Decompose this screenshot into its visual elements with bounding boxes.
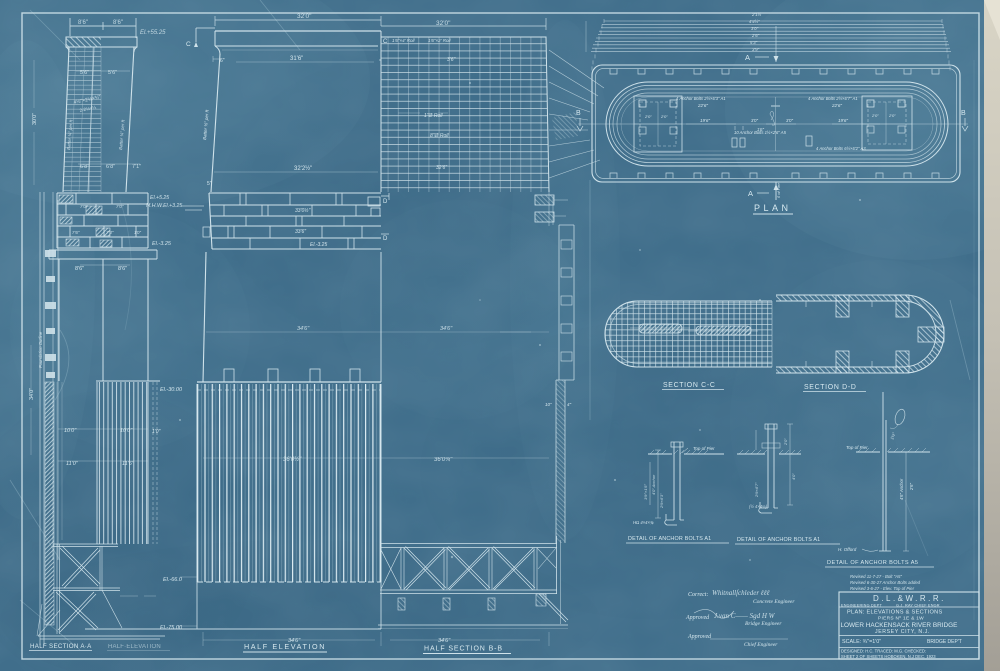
svg-text:4 Anchor Bolts 2½×6'7" A1: 4 Anchor Bolts 2½×6'7" A1	[808, 96, 858, 101]
svg-text:PLAN: PLAN	[754, 203, 792, 213]
svg-text:2'6": 2'6"	[751, 33, 760, 38]
svg-text:34'6": 34'6"	[438, 638, 451, 644]
svg-text:Foundation Outline: Foundation Outline	[38, 331, 43, 368]
svg-text:4": 4"	[567, 402, 572, 407]
svg-text:Revised 3-6-27 - Elev. Top of: Revised 3-6-27 - Elev. Top of Pier	[850, 586, 915, 591]
svg-text:SCALE: ¾"=1'0": SCALE: ¾"=1'0"	[842, 639, 881, 645]
svg-text:El.-3.25: El.-3.25	[152, 241, 172, 247]
svg-text:32'6": 32'6"	[436, 165, 447, 171]
svg-text:1'0": 1'0"	[134, 230, 141, 235]
svg-text:4'0": 4'0"	[791, 473, 796, 480]
svg-text:Whitnallſchleder ℓℓℓ: Whitnallſchleder ℓℓℓ	[712, 589, 770, 597]
svg-text:6": 6"	[220, 58, 225, 64]
svg-text:8"Ø Roll: 8"Ø Roll	[430, 133, 449, 139]
svg-text:1'0": 1'0"	[152, 429, 161, 435]
svg-text:ENGINEERING DEPT: ENGINEERING DEPT	[841, 604, 882, 608]
svg-text:Approved: Approved	[687, 634, 712, 640]
svg-text:3'9": 3'9"	[752, 47, 760, 52]
svg-text:8'6": 8'6"	[78, 20, 88, 26]
svg-text:PLAN: ELEVATIONS & SECTIONS: PLAN: ELEVATIONS & SECTIONS	[847, 610, 943, 616]
svg-text:G.J. RAY CHIEF ENGR: G.J. RAY CHIEF ENGR	[896, 604, 940, 608]
svg-text:SHEET 2 OF SHEETS HOBOKEN: SHEET 2 OF SHEETS HOBOKEN, N.J DEC. 1923	[841, 654, 936, 659]
svg-text:DETAIL OF ANCHOR BOLTS A1: DETAIL OF ANCHOR BOLTS A1	[628, 536, 711, 542]
svg-text:SECTION D-D: SECTION D-D	[804, 384, 857, 391]
svg-text:4 Anchor Bolts 6½×6'2" A3: 4 Anchor Bolts 6½×6'2" A3	[816, 146, 866, 151]
svg-text:4'6" Anchor: 4'6" Anchor	[899, 478, 904, 500]
svg-text:SECTION C-C: SECTION C-C	[663, 382, 716, 389]
svg-text:El.-30.00: El.-30.00	[160, 387, 183, 393]
svg-text:1'6"×2' Roll: 1'6"×2' Roll	[428, 38, 451, 43]
svg-text:H. Offord: H. Offord	[838, 547, 857, 552]
svg-text:DETAIL OF ANCHOR BOLTS A1: DETAIL OF ANCHOR BOLTS A1	[737, 537, 820, 543]
svg-text:8'6": 8'6"	[118, 266, 127, 272]
svg-text:33'0½": 33'0½"	[295, 207, 310, 214]
svg-text:Top of Pier: Top of Pier	[846, 445, 868, 450]
svg-text:2'0": 2'0"	[783, 438, 788, 446]
svg-text:22'6": 22'6"	[831, 103, 842, 108]
svg-text:2'0": 2'0"	[888, 113, 896, 118]
svg-text:¢ of Pier: ¢ of Pier	[776, 182, 781, 198]
svg-text:4'4½": 4'4½"	[749, 19, 760, 24]
svg-text:32'2½": 32'2½"	[294, 165, 312, 172]
svg-text:3'6": 3'6"	[447, 57, 456, 63]
svg-text:7'4": 7'4"	[106, 230, 114, 235]
svg-text:11'6": 11'6"	[122, 461, 135, 467]
svg-text:JERSEY CITY, N.J.: JERSEY CITY, N.J.	[875, 629, 930, 635]
svg-text:32'0": 32'0"	[297, 13, 312, 20]
svg-text:8'6": 8'6"	[75, 266, 84, 272]
svg-text:2'0": 2'0"	[644, 114, 652, 119]
svg-text:11'0": 11'0"	[66, 461, 79, 467]
svg-text:22'6": 22'6"	[697, 103, 708, 108]
svg-text:El.+55.25: El.+55.25	[140, 30, 166, 36]
svg-text:4 Anchor Bolts 2½×6'3" A1: 4 Anchor Bolts 2½×6'3" A1	[676, 96, 726, 101]
svg-text:1'6": 1'6"	[757, 127, 764, 132]
svg-text:PIERS Nº 1E & 1W: PIERS Nº 1E & 1W	[878, 616, 924, 622]
svg-text:HALF ELEVATION: HALF ELEVATION	[244, 642, 326, 651]
svg-text:32'0": 32'0"	[436, 20, 451, 27]
svg-text:3'0": 3'0"	[751, 26, 759, 31]
svg-text:M.H.W.El.+3.25: M.H.W.El.+3.25	[146, 203, 182, 209]
svg-text:5'3": 5'3"	[750, 40, 758, 45]
svg-text:HΩ 4×4×¾: HΩ 4×4×¾	[633, 520, 654, 525]
svg-text:B: B	[961, 110, 966, 117]
svg-text:31'6": 31'6"	[290, 56, 303, 62]
svg-text:BRIDGE DEP'T: BRIDGE DEP'T	[927, 639, 962, 645]
svg-text:El.+5.25: El.+5.25	[150, 195, 169, 201]
svg-text:Revised 11-7-27 - Bolt "A5": Revised 11-7-27 - Bolt "A5"	[850, 574, 902, 579]
svg-text:2'0": 2'0"	[871, 113, 879, 118]
svg-text:3'0": 3'0"	[751, 118, 758, 123]
svg-text:Top of Pier: Top of Pier	[693, 446, 715, 451]
svg-text:2'0": 2'0"	[660, 114, 668, 119]
svg-text:5": 5"	[207, 181, 212, 187]
svg-text:19'6": 19'6"	[700, 118, 710, 123]
svg-text:C: C	[383, 39, 388, 45]
svg-text:7'6": 7'6"	[72, 230, 80, 235]
svg-text:DESIGNED: H.C. TRACED: M.G. CH: DESIGNED: H.C. TRACED: M.G. CHECKED:	[841, 649, 926, 654]
svg-text:Revised 6-30-27 Anchor Bolts: Revised 6-30-27 Anchor Bolts added	[850, 580, 921, 585]
svg-text:7'0": 7'0"	[116, 204, 124, 209]
svg-text:El.-66.0: El.-66.0	[163, 577, 183, 583]
svg-text:D: D	[383, 199, 388, 205]
svg-text:30'0": 30'0"	[32, 113, 38, 125]
svg-text:1½"×1'6": 1½"×1'6"	[643, 483, 648, 500]
svg-text:HALF SECTION B-B: HALF SECTION B-B	[424, 646, 503, 653]
svg-text:2'6": 2'6"	[909, 483, 914, 491]
svg-text:Approved: Approved	[685, 615, 710, 621]
svg-text:C: C	[186, 41, 191, 48]
svg-text:33'6": 33'6"	[295, 229, 306, 235]
svg-text:Correct:: Correct:	[688, 592, 708, 598]
svg-text:El.-3.25: El.-3.25	[310, 242, 327, 248]
svg-text:DETAIL OF ANCHOR BOLTS A5: DETAIL OF ANCHOR BOLTS A5	[827, 560, 918, 566]
svg-text:34'0": 34'0"	[29, 388, 35, 400]
svg-text:(½ 4×4⅓): (½ 4×4⅓)	[749, 504, 768, 509]
svg-text:B: B	[576, 110, 581, 117]
svg-text:36'0½": 36'0½"	[283, 456, 302, 463]
svg-text:2½×6'3": 2½×6'3"	[659, 493, 664, 509]
svg-text:Concrete Engineer: Concrete Engineer	[753, 599, 795, 605]
svg-text:19'6": 19'6"	[838, 118, 848, 123]
svg-text:J.van C—— Sgd H W: J.van C—— Sgd H W	[714, 612, 776, 620]
svg-text:A: A	[745, 53, 750, 62]
svg-text:Chief Engineer: Chief Engineer	[744, 641, 778, 648]
svg-text:1"Ø Roll: 1"Ø Roll	[424, 113, 443, 119]
svg-text:1'6"×4' Roll: 1'6"×4' Roll	[392, 38, 415, 43]
svg-text:HALF·ELEVATION: HALF·ELEVATION	[108, 644, 161, 650]
svg-text:34'6": 34'6"	[440, 326, 453, 332]
svg-text:2'1½: 2'1½	[751, 12, 762, 17]
svg-text:D.L.&W.R.R.: D.L.&W.R.R.	[873, 594, 946, 603]
svg-text:36'0¾": 36'0¾"	[434, 457, 453, 463]
svg-text:D: D	[383, 236, 388, 242]
svg-text:10": 10"	[545, 402, 552, 407]
svg-text:6'8": 6'8"	[80, 164, 89, 170]
svg-text:3'0": 3'0"	[786, 118, 793, 123]
svg-text:8'6": 8'6"	[113, 20, 123, 26]
svg-text:Bridge Engineer: Bridge Engineer	[745, 621, 782, 627]
svg-text:HALF SECTION A·A: HALF SECTION A·A	[30, 643, 92, 650]
svg-text:A: A	[748, 189, 753, 198]
svg-text:7'1": 7'1"	[132, 164, 141, 170]
svg-text:LOWER HACKENSACK RIVER BRIDGE: LOWER HACKENSACK RIVER BRIDGE	[841, 622, 958, 629]
svg-text:7'0": 7'0"	[80, 204, 88, 209]
svg-text:6'8": 6'8"	[106, 164, 115, 170]
svg-text:34'6": 34'6"	[297, 326, 310, 332]
svg-text:2½×6'7": 2½×6'7"	[754, 482, 759, 498]
svg-text:4'0" Anchor: 4'0" Anchor	[651, 474, 656, 495]
